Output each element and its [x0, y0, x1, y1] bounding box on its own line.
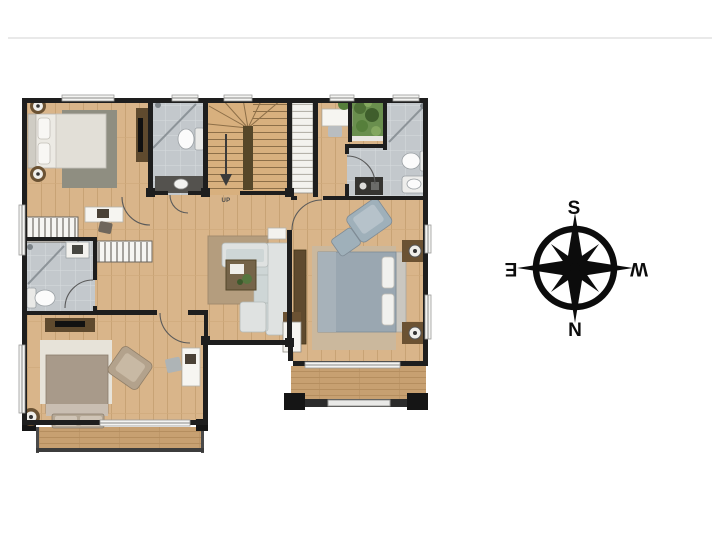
railing-post [407, 393, 428, 410]
compass-label-east: E [505, 258, 518, 279]
pillow [382, 294, 394, 325]
nightstand-lamp [30, 166, 46, 182]
compass-label-south: S [568, 198, 581, 219]
balcony-deck [291, 366, 426, 402]
duvet-fold [318, 252, 336, 332]
railing-post [284, 393, 305, 410]
bed [46, 355, 108, 428]
desk-item [185, 354, 196, 364]
staircase: UP [208, 98, 290, 204]
balcony-railing [36, 448, 204, 452]
stairs-up-label: UP [222, 198, 231, 204]
pillow [382, 257, 394, 288]
bed [28, 114, 106, 168]
bed [318, 252, 406, 332]
headboard [28, 114, 36, 168]
vanity-sink [155, 176, 205, 193]
planter-sill [352, 136, 385, 141]
chaise [240, 302, 266, 332]
chair [328, 126, 342, 137]
floor-plan-page: UP [0, 0, 720, 540]
bath-counter [355, 177, 383, 195]
desk [182, 348, 200, 386]
coffee-table [226, 260, 256, 290]
compass-rose-icon: S N E W [505, 198, 648, 341]
desk-item [97, 209, 109, 218]
floor-plan-canvas: UP [0, 0, 720, 540]
tv-console [136, 108, 150, 162]
sink [66, 242, 89, 258]
balcony-deck [38, 427, 203, 449]
linen-closet [292, 100, 313, 193]
compass-center [570, 263, 580, 273]
desk [322, 109, 352, 126]
compass-label-west: W [630, 258, 648, 279]
tv-console [45, 318, 95, 332]
balcony-bottom-right [284, 366, 428, 410]
shower-head [27, 244, 33, 250]
stair-stringer [243, 126, 253, 190]
stair-flight-right [253, 104, 288, 192]
railing-glass [328, 400, 390, 406]
planter [352, 99, 385, 141]
duvet [56, 114, 106, 168]
toilet [178, 128, 204, 150]
side-table [268, 228, 286, 239]
compass-label-north: N [568, 320, 582, 341]
headboard [396, 252, 406, 332]
pillow [38, 118, 50, 139]
pillow [38, 143, 50, 164]
floor-plan: UP [19, 95, 431, 453]
wardrobe [97, 241, 152, 262]
